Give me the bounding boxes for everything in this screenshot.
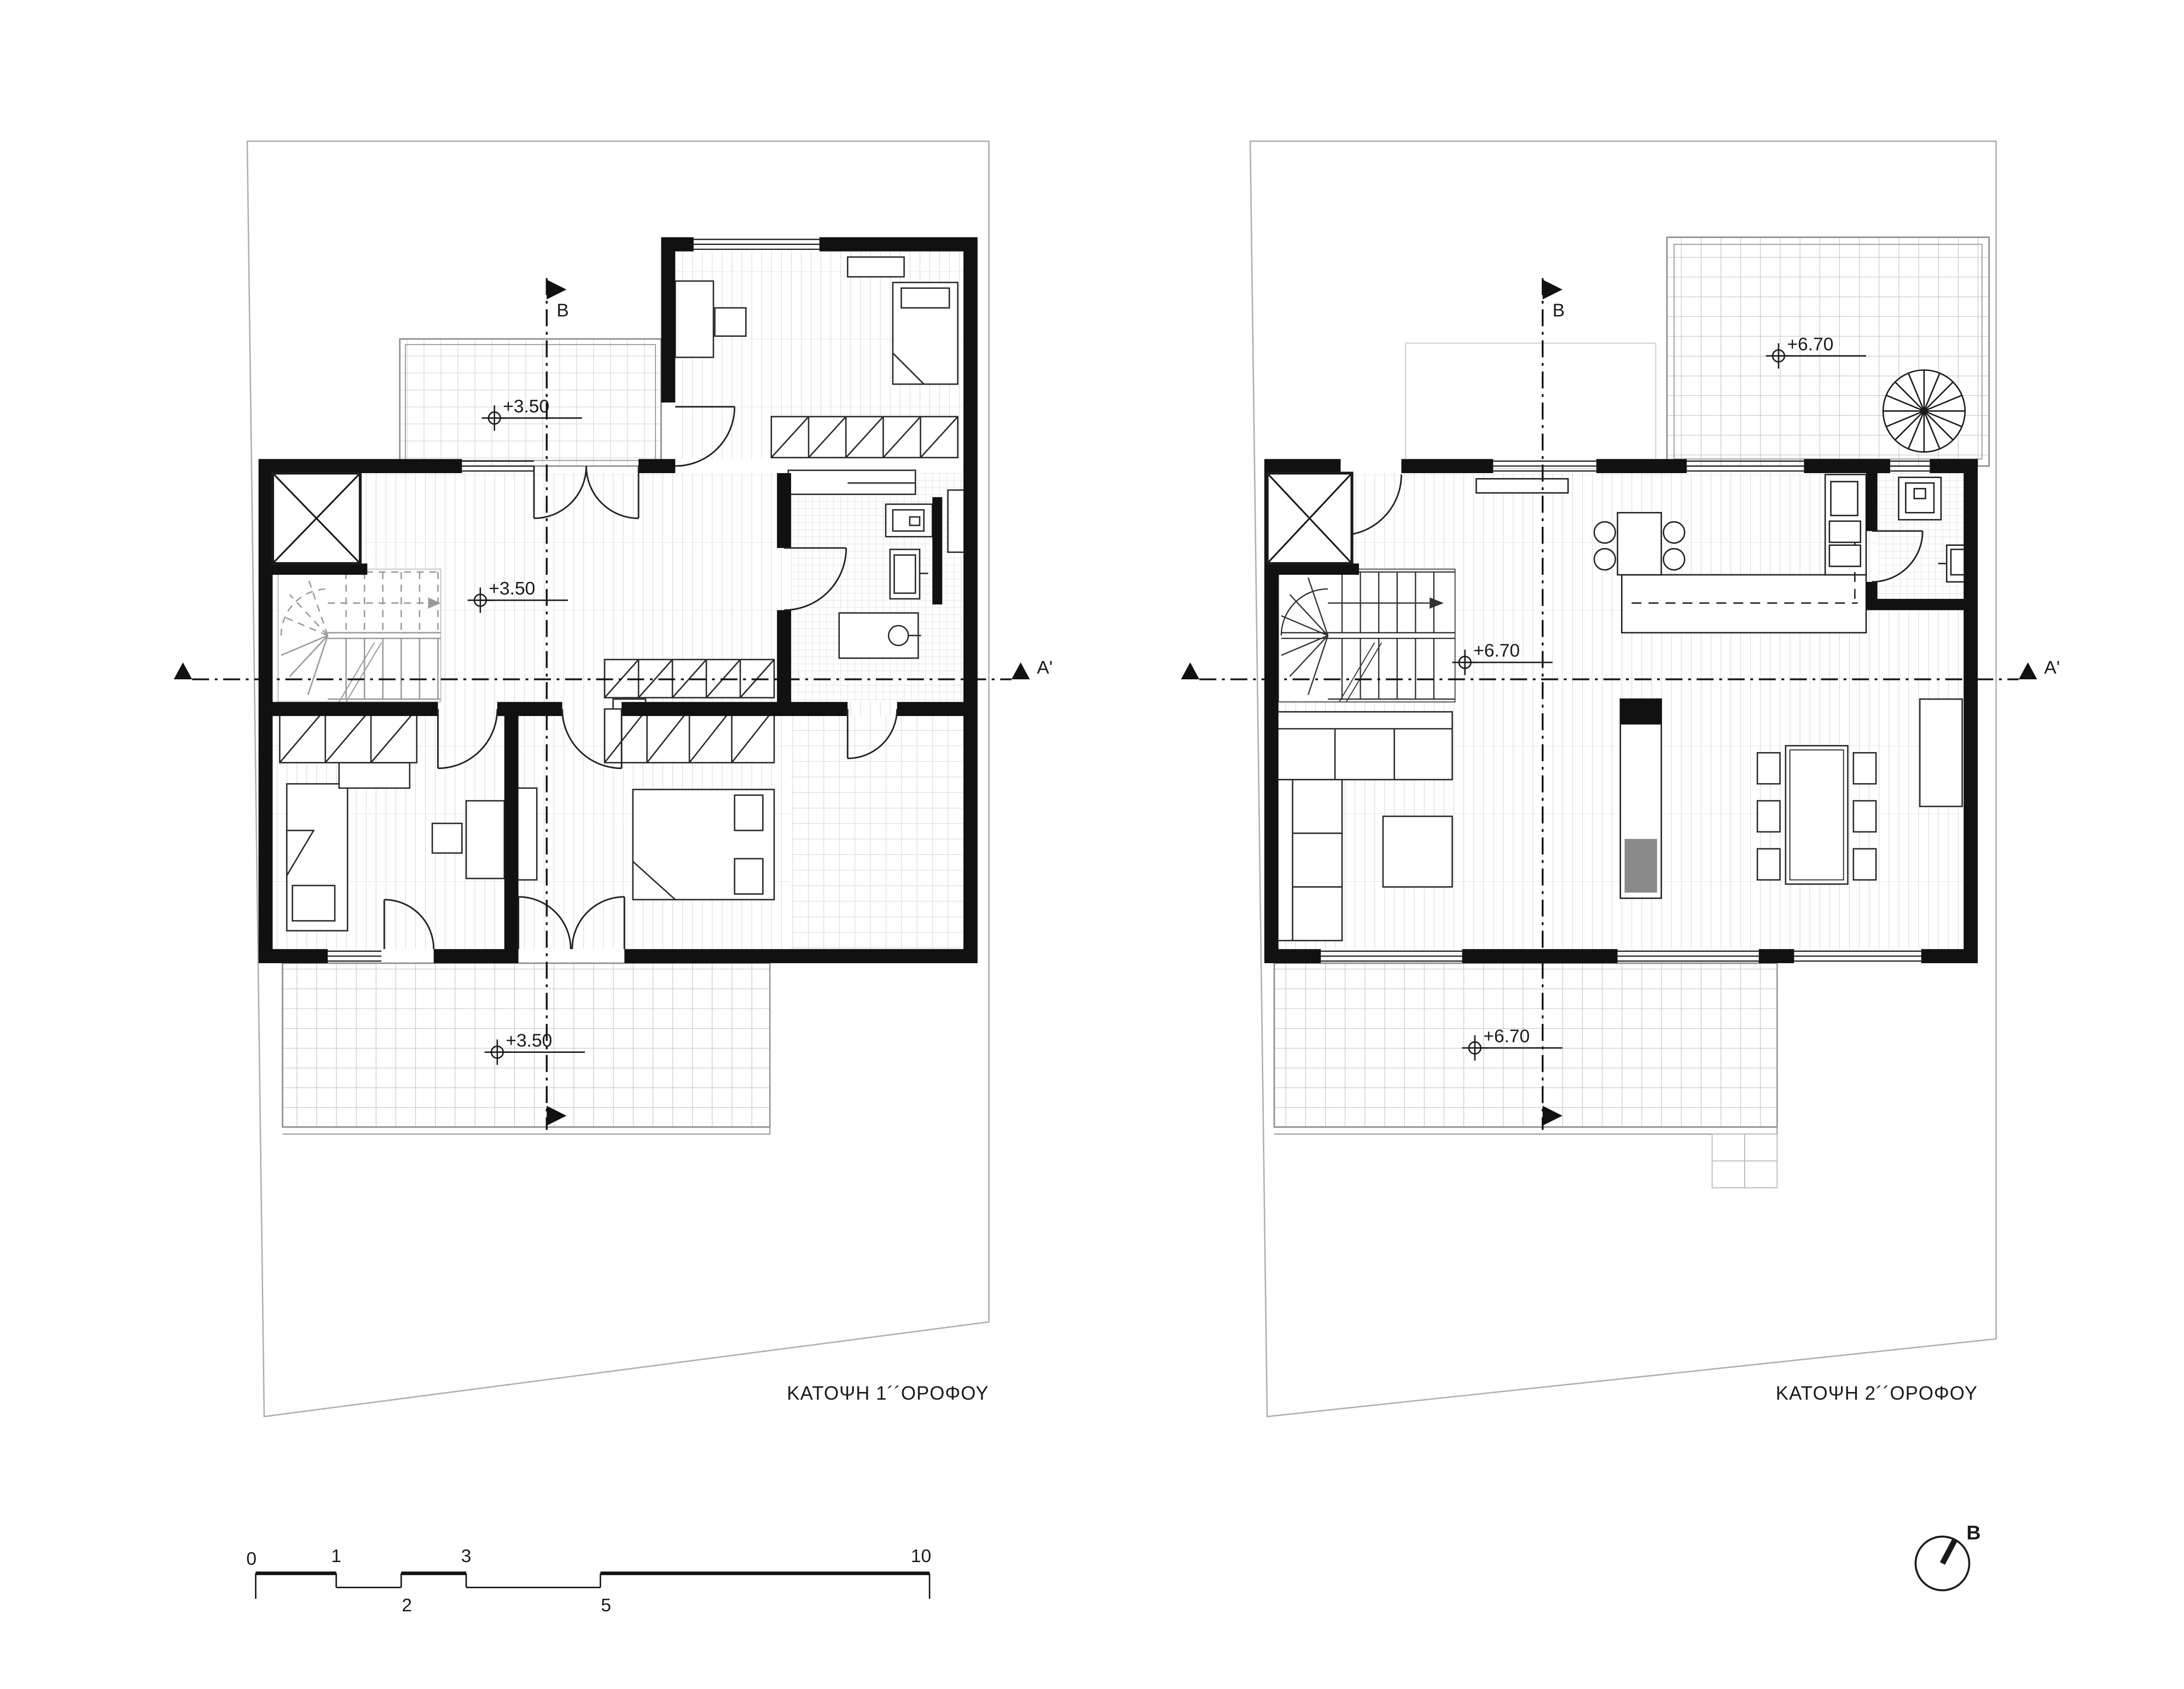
plan-title-second-floor: ΚΑΤΟΨΗ 2´´ΟΡΟΦΟΥ [1776,1383,1978,1404]
scale-tick-2: 2 [402,1595,412,1616]
spiral-stair [1883,370,1965,452]
light-shaft [1267,473,1352,563]
toilet-flush [910,517,920,525]
shelf [847,257,904,277]
sofa-top [1276,712,1453,779]
level-label: +6.70 [1787,334,1833,354]
bed-foot [293,886,335,921]
scale-tick-10: 10 [911,1546,931,1566]
section-label-b: B [556,300,568,321]
sink-bowl [1829,521,1861,543]
pillow [735,859,763,894]
chair [1663,522,1685,543]
toilet-flush [1914,488,1926,498]
sink [888,626,908,645]
level-label: +3.50 [489,579,535,599]
level-label: +6.70 [1473,641,1520,661]
balcony-floor-overlay [791,716,963,949]
shelf [339,762,410,788]
staircase [1279,569,1455,702]
chair [1854,801,1876,832]
level-label: +3.50 [503,397,549,417]
chair [1854,753,1876,784]
wardrobe-left-bedroom [280,709,416,762]
dining-table [1786,746,1848,884]
stair-well [1279,569,1455,702]
stair-well [278,569,441,702]
coffee-table [1383,816,1453,887]
chair [1757,849,1780,880]
shower-tray [894,555,916,593]
chair [1854,849,1876,880]
scale-tick-3: 3 [461,1546,472,1566]
chair [1757,801,1780,832]
fireplace-hearth [1624,839,1657,893]
section-label-a-end: A' [1037,658,1053,678]
desk [466,801,504,878]
chair [1594,522,1616,543]
fireplace-wall-cap [1620,699,1662,724]
sideboard [1920,699,1962,806]
north-label: B [1966,1522,1980,1544]
floor-plan-sheet: +3.50 +3.50 +3.50 B A' ΚΑΤΟΨΗ 1´´ΟΡΟΦΟΥ [0,0,2184,1689]
sink-bowl [1829,545,1861,567]
level-label: +6.70 [1483,1027,1530,1047]
plan-title-first-floor: ΚΑΤΟΨΗ 1´´ΟΡΟΦΟΥ [787,1383,989,1404]
wardrobe [517,788,537,880]
chair [1663,549,1685,570]
light-shaft [272,473,360,563]
section-label-a-end: A' [2044,658,2060,678]
chair [715,308,746,336]
level-label: +3.50 [506,1030,552,1051]
chair [1594,549,1616,570]
fireplace [1620,699,1662,898]
desk [675,281,713,357]
wardrobe-right-bedroom [605,709,774,762]
drawing-canvas: +3.50 +3.50 +3.50 B A' ΚΑΤΟΨΗ 1´´ΟΡΟΦΟΥ [0,0,2184,1689]
scale-tick-0: 0 [246,1549,257,1569]
sofa-left [1276,779,1342,940]
wardrobe-upper-bedroom [771,417,958,458]
chair [1757,753,1780,784]
section-label-b: B [1553,300,1565,321]
vanity-counter [788,470,915,494]
staircase [278,569,441,702]
island-table [1618,512,1662,575]
scale-tick-5: 5 [601,1595,611,1616]
cooktop [1831,482,1857,516]
pillow [735,795,763,831]
pillow [901,288,949,308]
sideboard [1476,479,1568,493]
chair [432,823,462,853]
scale-tick-1: 1 [331,1546,341,1566]
